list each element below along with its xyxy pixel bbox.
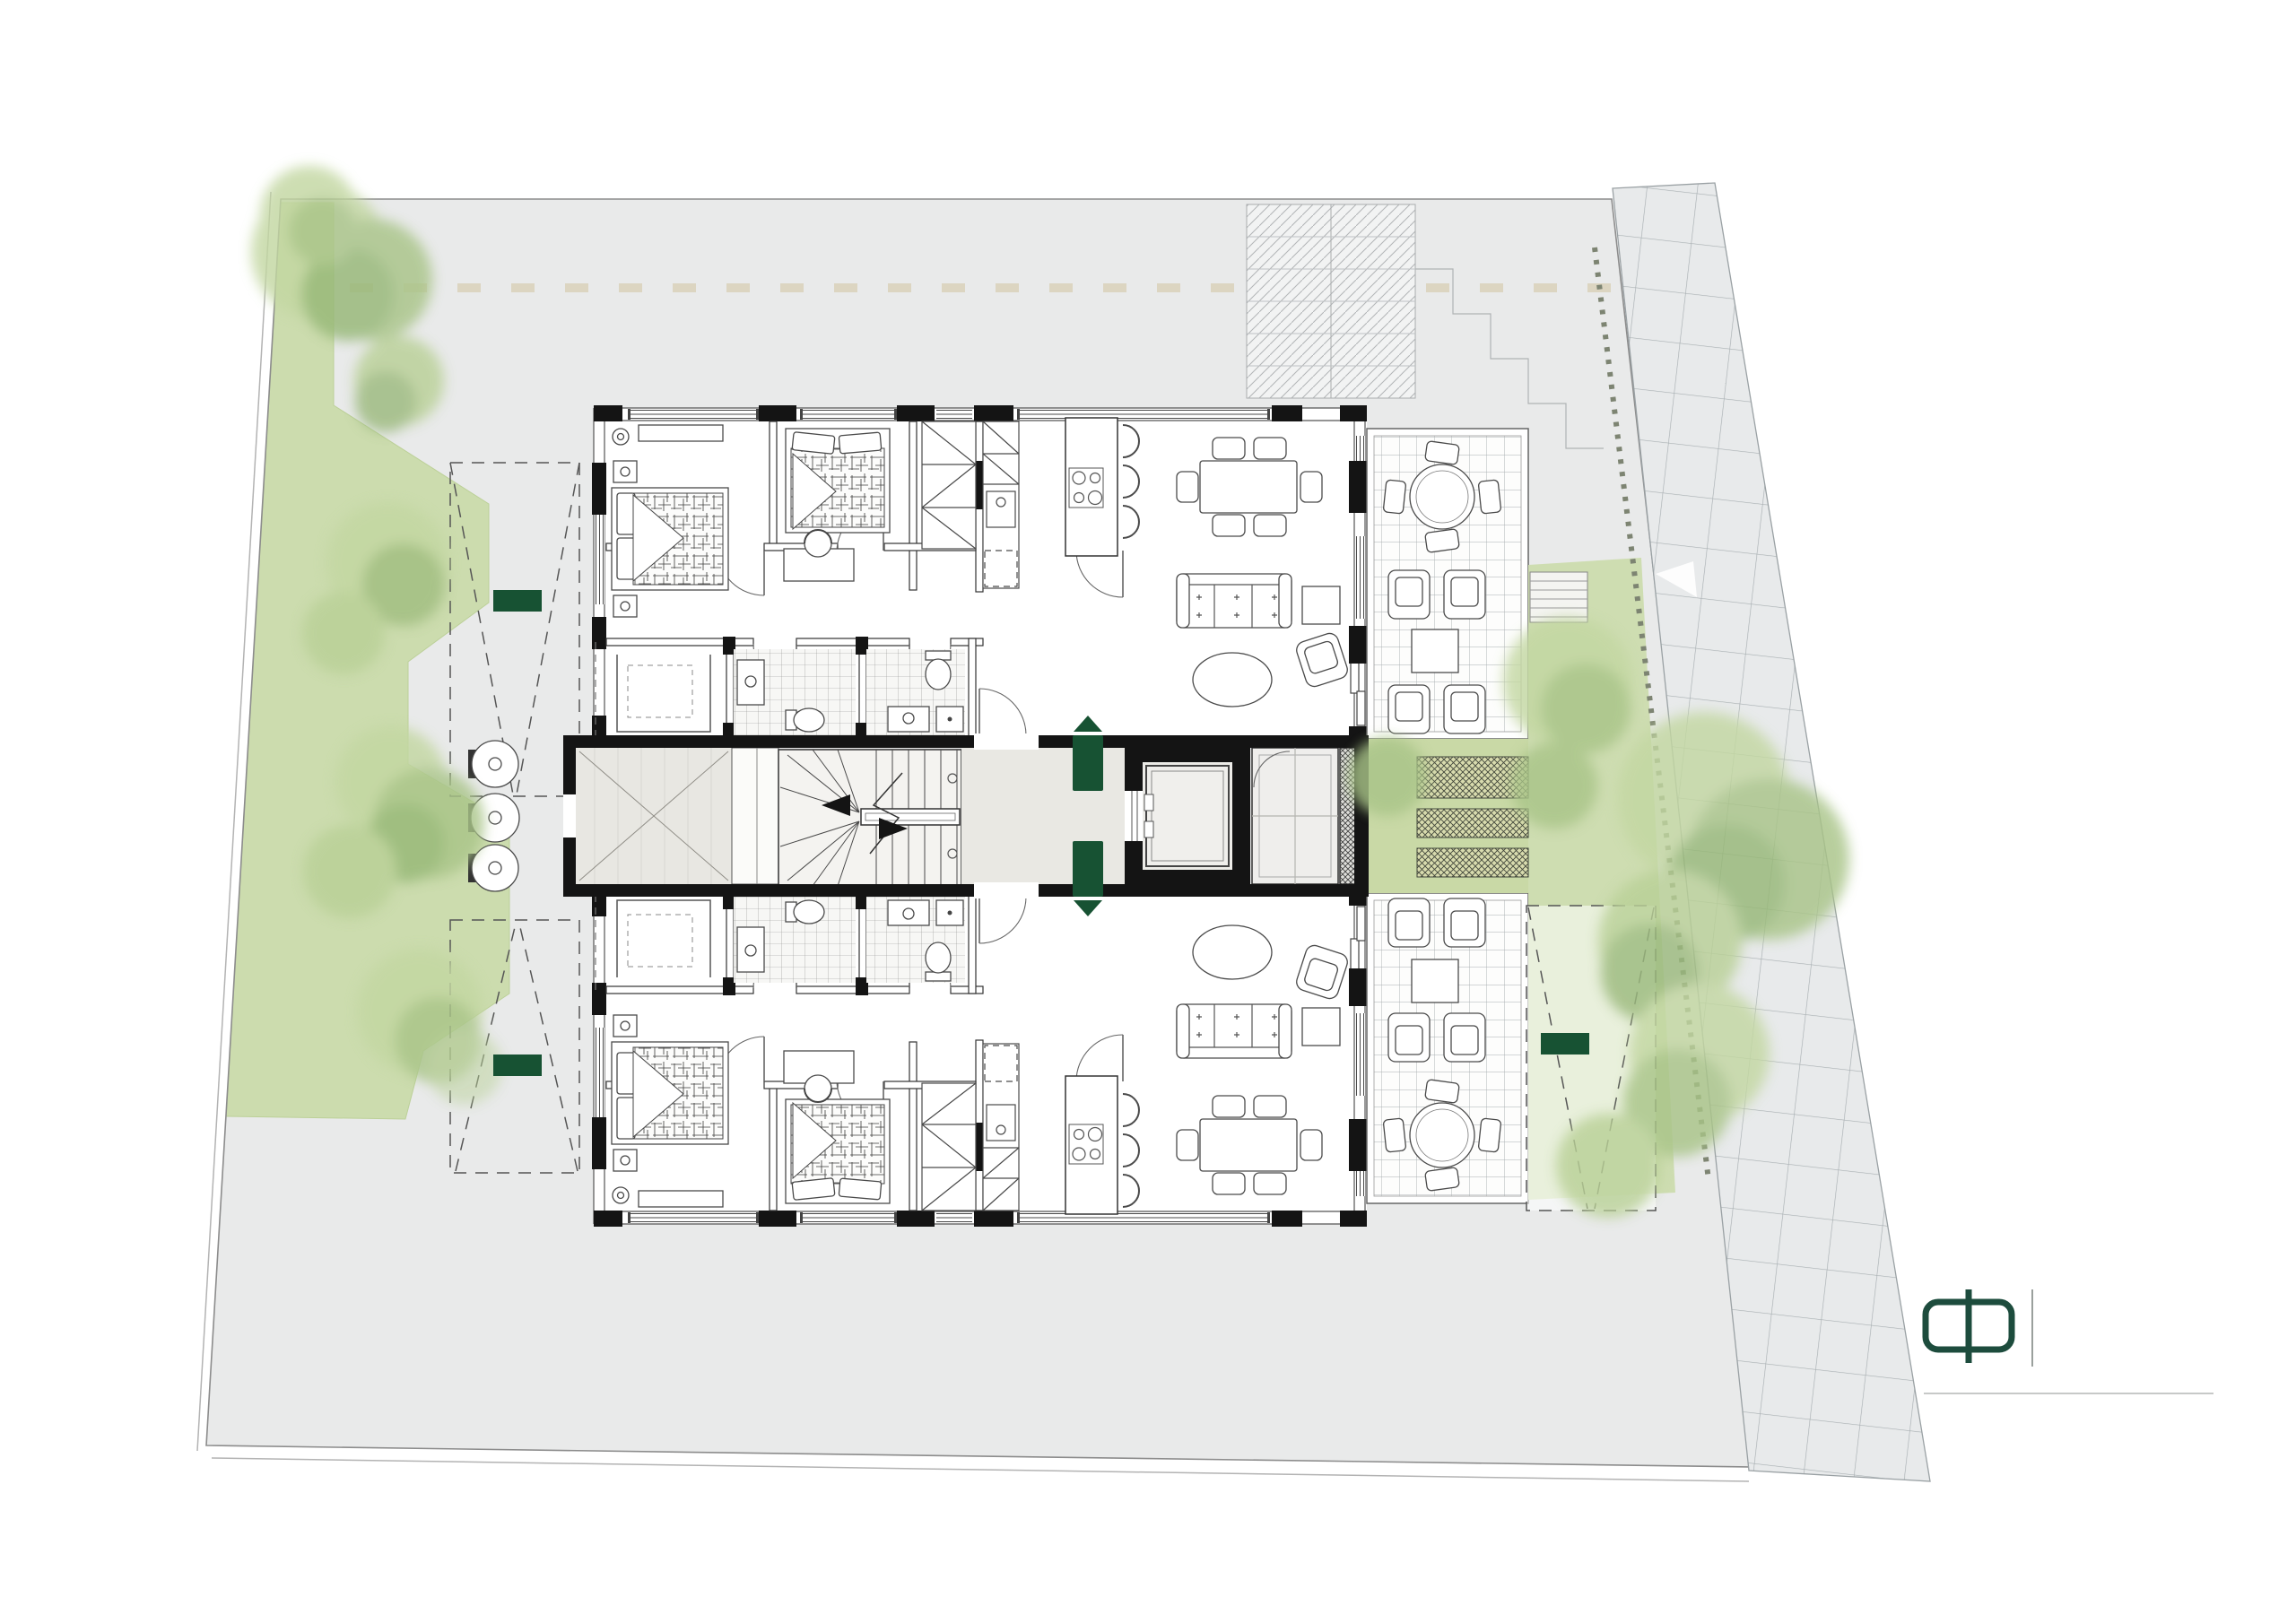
tree [302, 592, 385, 674]
unit-301-badge [1073, 841, 1103, 897]
tree [1348, 737, 1427, 816]
window [800, 409, 897, 420]
floor-plan-canvas [0, 0, 2296, 1623]
window [628, 409, 759, 420]
parking-unit-badge [493, 1055, 542, 1076]
parking-01-label [1541, 1033, 1589, 1055]
planters [1417, 757, 1528, 877]
garden-steps [1530, 572, 1587, 622]
tree [427, 1029, 502, 1105]
entry-gap-302 [974, 733, 1039, 750]
parking-unit-badge [493, 590, 542, 612]
storage-room [1252, 748, 1338, 884]
tree [303, 825, 396, 918]
parking-07-label [493, 1055, 542, 1076]
hilltop-logo-icon [1926, 1289, 2012, 1363]
terrace [1367, 429, 1528, 739]
building-core [468, 733, 1369, 898]
stair-landing [732, 748, 778, 884]
elevator [1125, 744, 1250, 888]
tree [1556, 1114, 1660, 1218]
stair-rail [861, 809, 960, 825]
apartment-unit [592, 405, 1528, 739]
apartment-unit-lower-mirror [592, 893, 1528, 1227]
window [595, 515, 604, 604]
entry-gap-301 [974, 882, 1039, 898]
window [1355, 536, 1365, 619]
window [1017, 409, 1270, 420]
tree [1511, 742, 1597, 829]
parking-08-label [493, 590, 542, 612]
window [936, 409, 972, 420]
unit-302-badge [1073, 735, 1103, 791]
parking-unit-badge [1541, 1033, 1589, 1055]
